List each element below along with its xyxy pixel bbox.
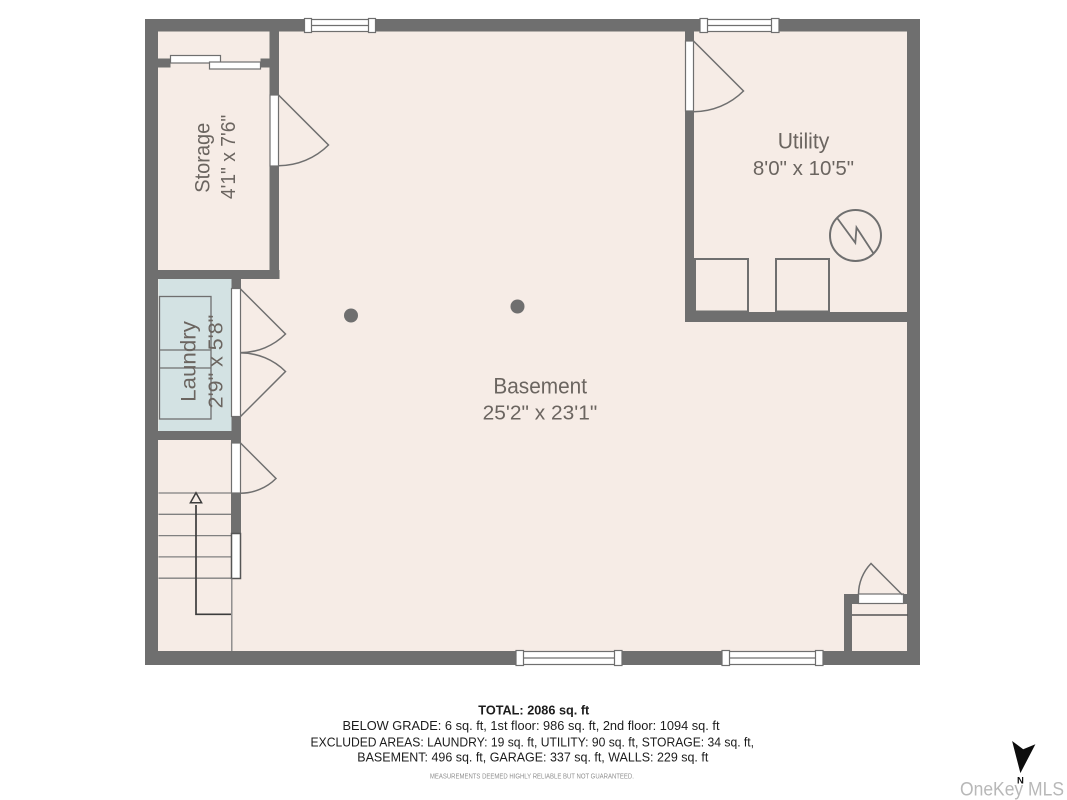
svg-text:25'2" x 23'1": 25'2" x 23'1" bbox=[483, 402, 598, 425]
svg-text:Storage: Storage bbox=[192, 123, 215, 193]
svg-text:MEASUREMENTS DEEMED HIGHLY REL: MEASUREMENTS DEEMED HIGHLY RELIABLE BUT … bbox=[430, 772, 634, 781]
svg-text:TOTAL: 2086 sq. ft: TOTAL: 2086 sq. ft bbox=[478, 703, 590, 718]
svg-text:2'9" x 5'8": 2'9" x 5'8" bbox=[206, 315, 228, 409]
svg-text:BELOW GRADE: 6 sq. ft, 1st flo: BELOW GRADE: 6 sq. ft, 1st floor: 986 sq… bbox=[343, 718, 720, 733]
svg-text:N: N bbox=[1017, 776, 1024, 787]
svg-text:OneKey MLS: OneKey MLS bbox=[960, 779, 1064, 800]
svg-text:4'1" x 7'6": 4'1" x 7'6" bbox=[218, 115, 240, 199]
svg-text:Utility: Utility bbox=[778, 129, 830, 154]
svg-text:EXCLUDED AREAS: LAUNDRY: 19 sq: EXCLUDED AREAS: LAUNDRY: 19 sq. ft, UTIL… bbox=[311, 735, 755, 750]
svg-text:Basement: Basement bbox=[493, 374, 587, 399]
svg-text:Laundry: Laundry bbox=[178, 321, 201, 402]
svg-text:BASEMENT: 496 sq. ft, GARAGE:: BASEMENT: 496 sq. ft, GARAGE: 337 sq. ft… bbox=[357, 750, 708, 765]
svg-text:8'0" x 10'5": 8'0" x 10'5" bbox=[753, 158, 854, 180]
